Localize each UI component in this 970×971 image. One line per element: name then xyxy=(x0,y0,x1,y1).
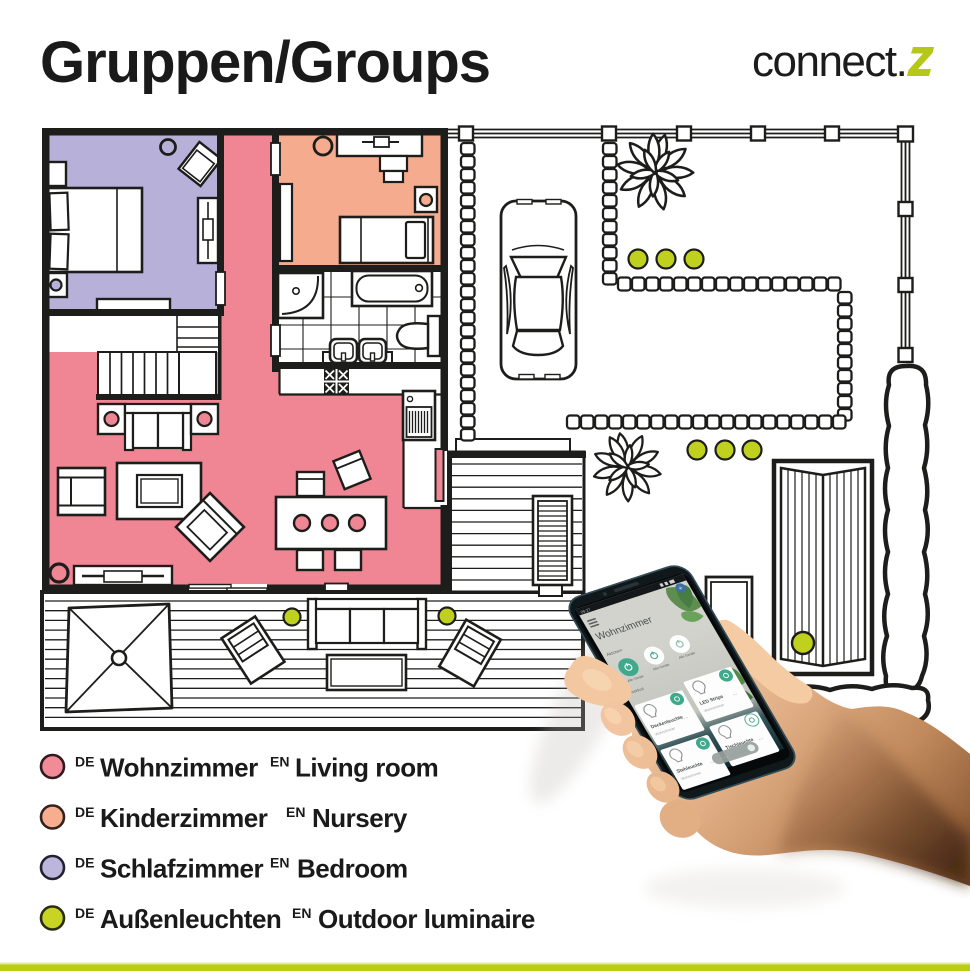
svg-text:connect.: connect. xyxy=(752,37,906,86)
svg-text:Gruppen/Groups: Gruppen/Groups xyxy=(40,30,490,95)
svg-text:Living room: Living room xyxy=(295,753,438,783)
svg-text:DE: DE xyxy=(75,804,94,820)
svg-text:Nursery: Nursery xyxy=(312,803,408,833)
svg-text:Bedroom: Bedroom xyxy=(297,854,408,884)
svg-text:EN: EN xyxy=(270,754,289,770)
svg-text:Außenleuchten: Außenleuchten xyxy=(100,904,281,934)
svg-text:Schlafzimmer: Schlafzimmer xyxy=(100,854,263,884)
svg-text:DE: DE xyxy=(75,754,94,770)
svg-text:Wohnzimmer: Wohnzimmer xyxy=(100,753,258,783)
svg-text:EN: EN xyxy=(292,905,311,921)
svg-text:DE: DE xyxy=(75,855,94,871)
svg-text:DE: DE xyxy=(75,905,94,921)
svg-text:Outdoor luminaire: Outdoor luminaire xyxy=(318,904,535,934)
svg-text:Kinderzimmer: Kinderzimmer xyxy=(100,803,268,833)
svg-text:EN: EN xyxy=(270,855,289,871)
svg-text:EN: EN xyxy=(286,804,305,820)
